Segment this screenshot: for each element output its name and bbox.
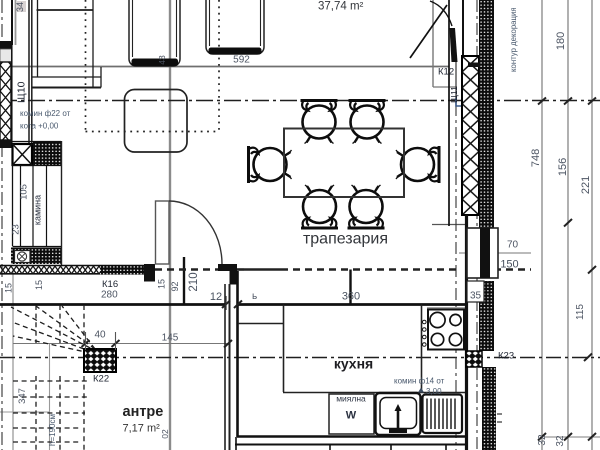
- svg-text:К16: К16: [102, 279, 118, 290]
- svg-text:W: W: [346, 410, 357, 422]
- svg-text:02: 02: [160, 429, 170, 439]
- svg-text:К12: К12: [438, 67, 454, 78]
- svg-text:кота +0,00: кота +0,00: [20, 122, 59, 131]
- svg-text:К22: К22: [93, 374, 109, 385]
- svg-text:32: 32: [537, 434, 548, 446]
- svg-text:камина: камина: [33, 195, 43, 225]
- svg-text:210: 210: [188, 272, 200, 291]
- svg-text:12: 12: [210, 291, 222, 303]
- svg-text:70: 70: [507, 240, 519, 251]
- svg-text:миялна: миялна: [336, 394, 366, 404]
- svg-text:15: 15: [34, 280, 44, 290]
- svg-text:h=190см: h=190см: [48, 414, 57, 446]
- svg-text:15: 15: [4, 283, 14, 293]
- svg-text:15: 15: [157, 279, 167, 289]
- svg-text:43: 43: [157, 55, 167, 65]
- svg-text:трапезария: трапезария: [303, 231, 388, 248]
- svg-text:комин ф14 от: комин ф14 от: [394, 377, 445, 386]
- svg-text:3,00: 3,00: [426, 387, 442, 396]
- svg-text:748: 748: [530, 149, 542, 167]
- svg-text:115: 115: [575, 304, 586, 320]
- svg-text:37,74 m²: 37,74 m²: [318, 1, 364, 13]
- svg-text:кухня: кухня: [334, 356, 373, 372]
- svg-text:34: 34: [15, 2, 25, 12]
- svg-text:347: 347: [17, 388, 28, 404]
- svg-text:комин ф22 от: комин ф22 от: [20, 109, 71, 118]
- svg-text:360: 360: [342, 291, 360, 303]
- svg-text:221: 221: [580, 176, 592, 194]
- svg-text:Щ10: Щ10: [16, 81, 28, 103]
- svg-text:антре: антре: [123, 404, 164, 420]
- svg-text:145: 145: [162, 333, 179, 344]
- svg-text:180: 180: [555, 32, 567, 50]
- svg-text:105: 105: [19, 184, 30, 200]
- svg-text:150: 150: [500, 259, 518, 271]
- svg-text:Щ11: Щ11: [449, 86, 459, 103]
- svg-text:7,17 m²: 7,17 m²: [123, 423, 161, 435]
- svg-text:К23: К23: [498, 351, 514, 362]
- svg-text:23: 23: [11, 224, 22, 235]
- svg-text:92: 92: [170, 281, 180, 291]
- svg-text:контур декорация: контур декорация: [509, 7, 518, 72]
- svg-text:156: 156: [557, 158, 569, 176]
- svg-text:32: 32: [555, 435, 566, 447]
- svg-text:40: 40: [94, 330, 106, 341]
- svg-text:592: 592: [233, 55, 250, 66]
- svg-text:35: 35: [470, 291, 482, 302]
- svg-text:ь: ь: [252, 291, 257, 302]
- svg-text:280: 280: [101, 290, 118, 301]
